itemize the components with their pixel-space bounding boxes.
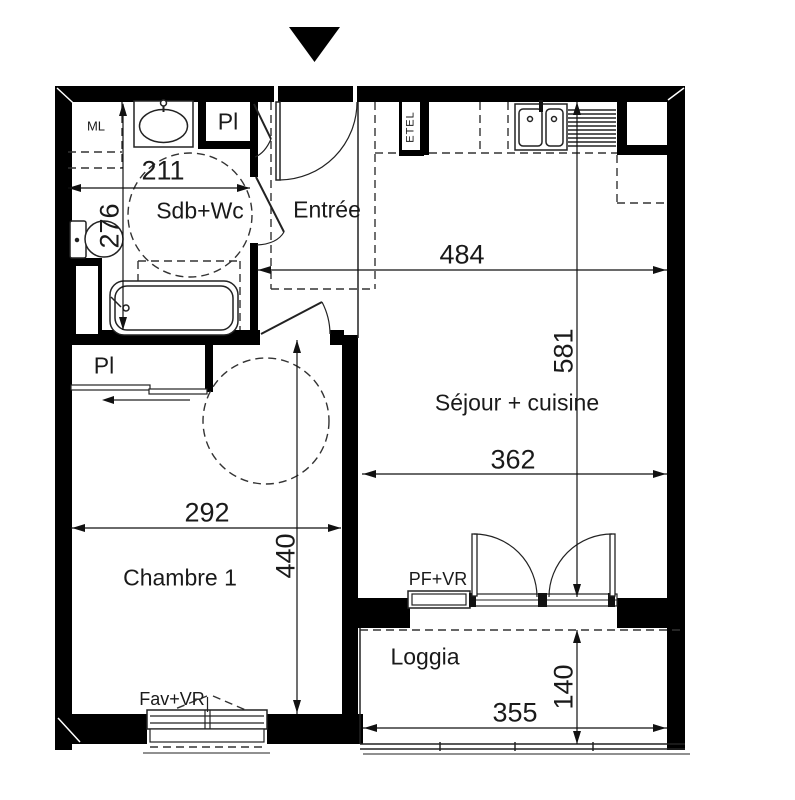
walls <box>55 86 685 750</box>
dim-211: 211 <box>141 158 184 185</box>
pl-sdb-label: Pl <box>218 111 238 134</box>
room-label-sdb: Sdb+Wc <box>156 200 244 223</box>
bedroom-door <box>261 302 330 334</box>
dim-355: 355 <box>492 700 537 727</box>
dim-292: 292 <box>184 500 229 527</box>
etel-label: ETEL <box>406 111 417 143</box>
floor-plan-drawing <box>0 0 795 800</box>
entrance-door <box>276 102 357 180</box>
room-label-sejour: Séjour + cuisine <box>435 392 599 415</box>
dim-140: 140 <box>551 664 578 709</box>
pf-vr-label: PF+VR <box>409 570 468 588</box>
fav-vr-label: Fav+VR <box>139 690 205 708</box>
dim-362: 362 <box>490 447 535 474</box>
washbasin <box>134 99 193 147</box>
dim-440: 440 <box>273 533 300 578</box>
room-label-loggia: Loggia <box>390 646 459 669</box>
dim-484: 484 <box>439 242 484 269</box>
bathtub <box>110 281 238 335</box>
bathroom-door <box>256 177 284 245</box>
floor-plan: ML Pl 211 276 Sdb+Wc Entrée ETEL 484 581… <box>0 0 795 800</box>
kitchen-sink <box>515 100 567 150</box>
ml-label: ML <box>87 120 105 133</box>
dim-581: 581 <box>551 328 578 373</box>
sliding-closet-door <box>71 385 207 404</box>
dim-276: 276 <box>97 203 124 248</box>
entrance-arrow-icon <box>289 27 340 62</box>
drainer-hatch <box>568 110 616 146</box>
pl-chambre-label: Pl <box>94 355 114 378</box>
room-label-chambre1: Chambre 1 <box>123 567 237 590</box>
room-label-entree: Entrée <box>293 199 361 222</box>
